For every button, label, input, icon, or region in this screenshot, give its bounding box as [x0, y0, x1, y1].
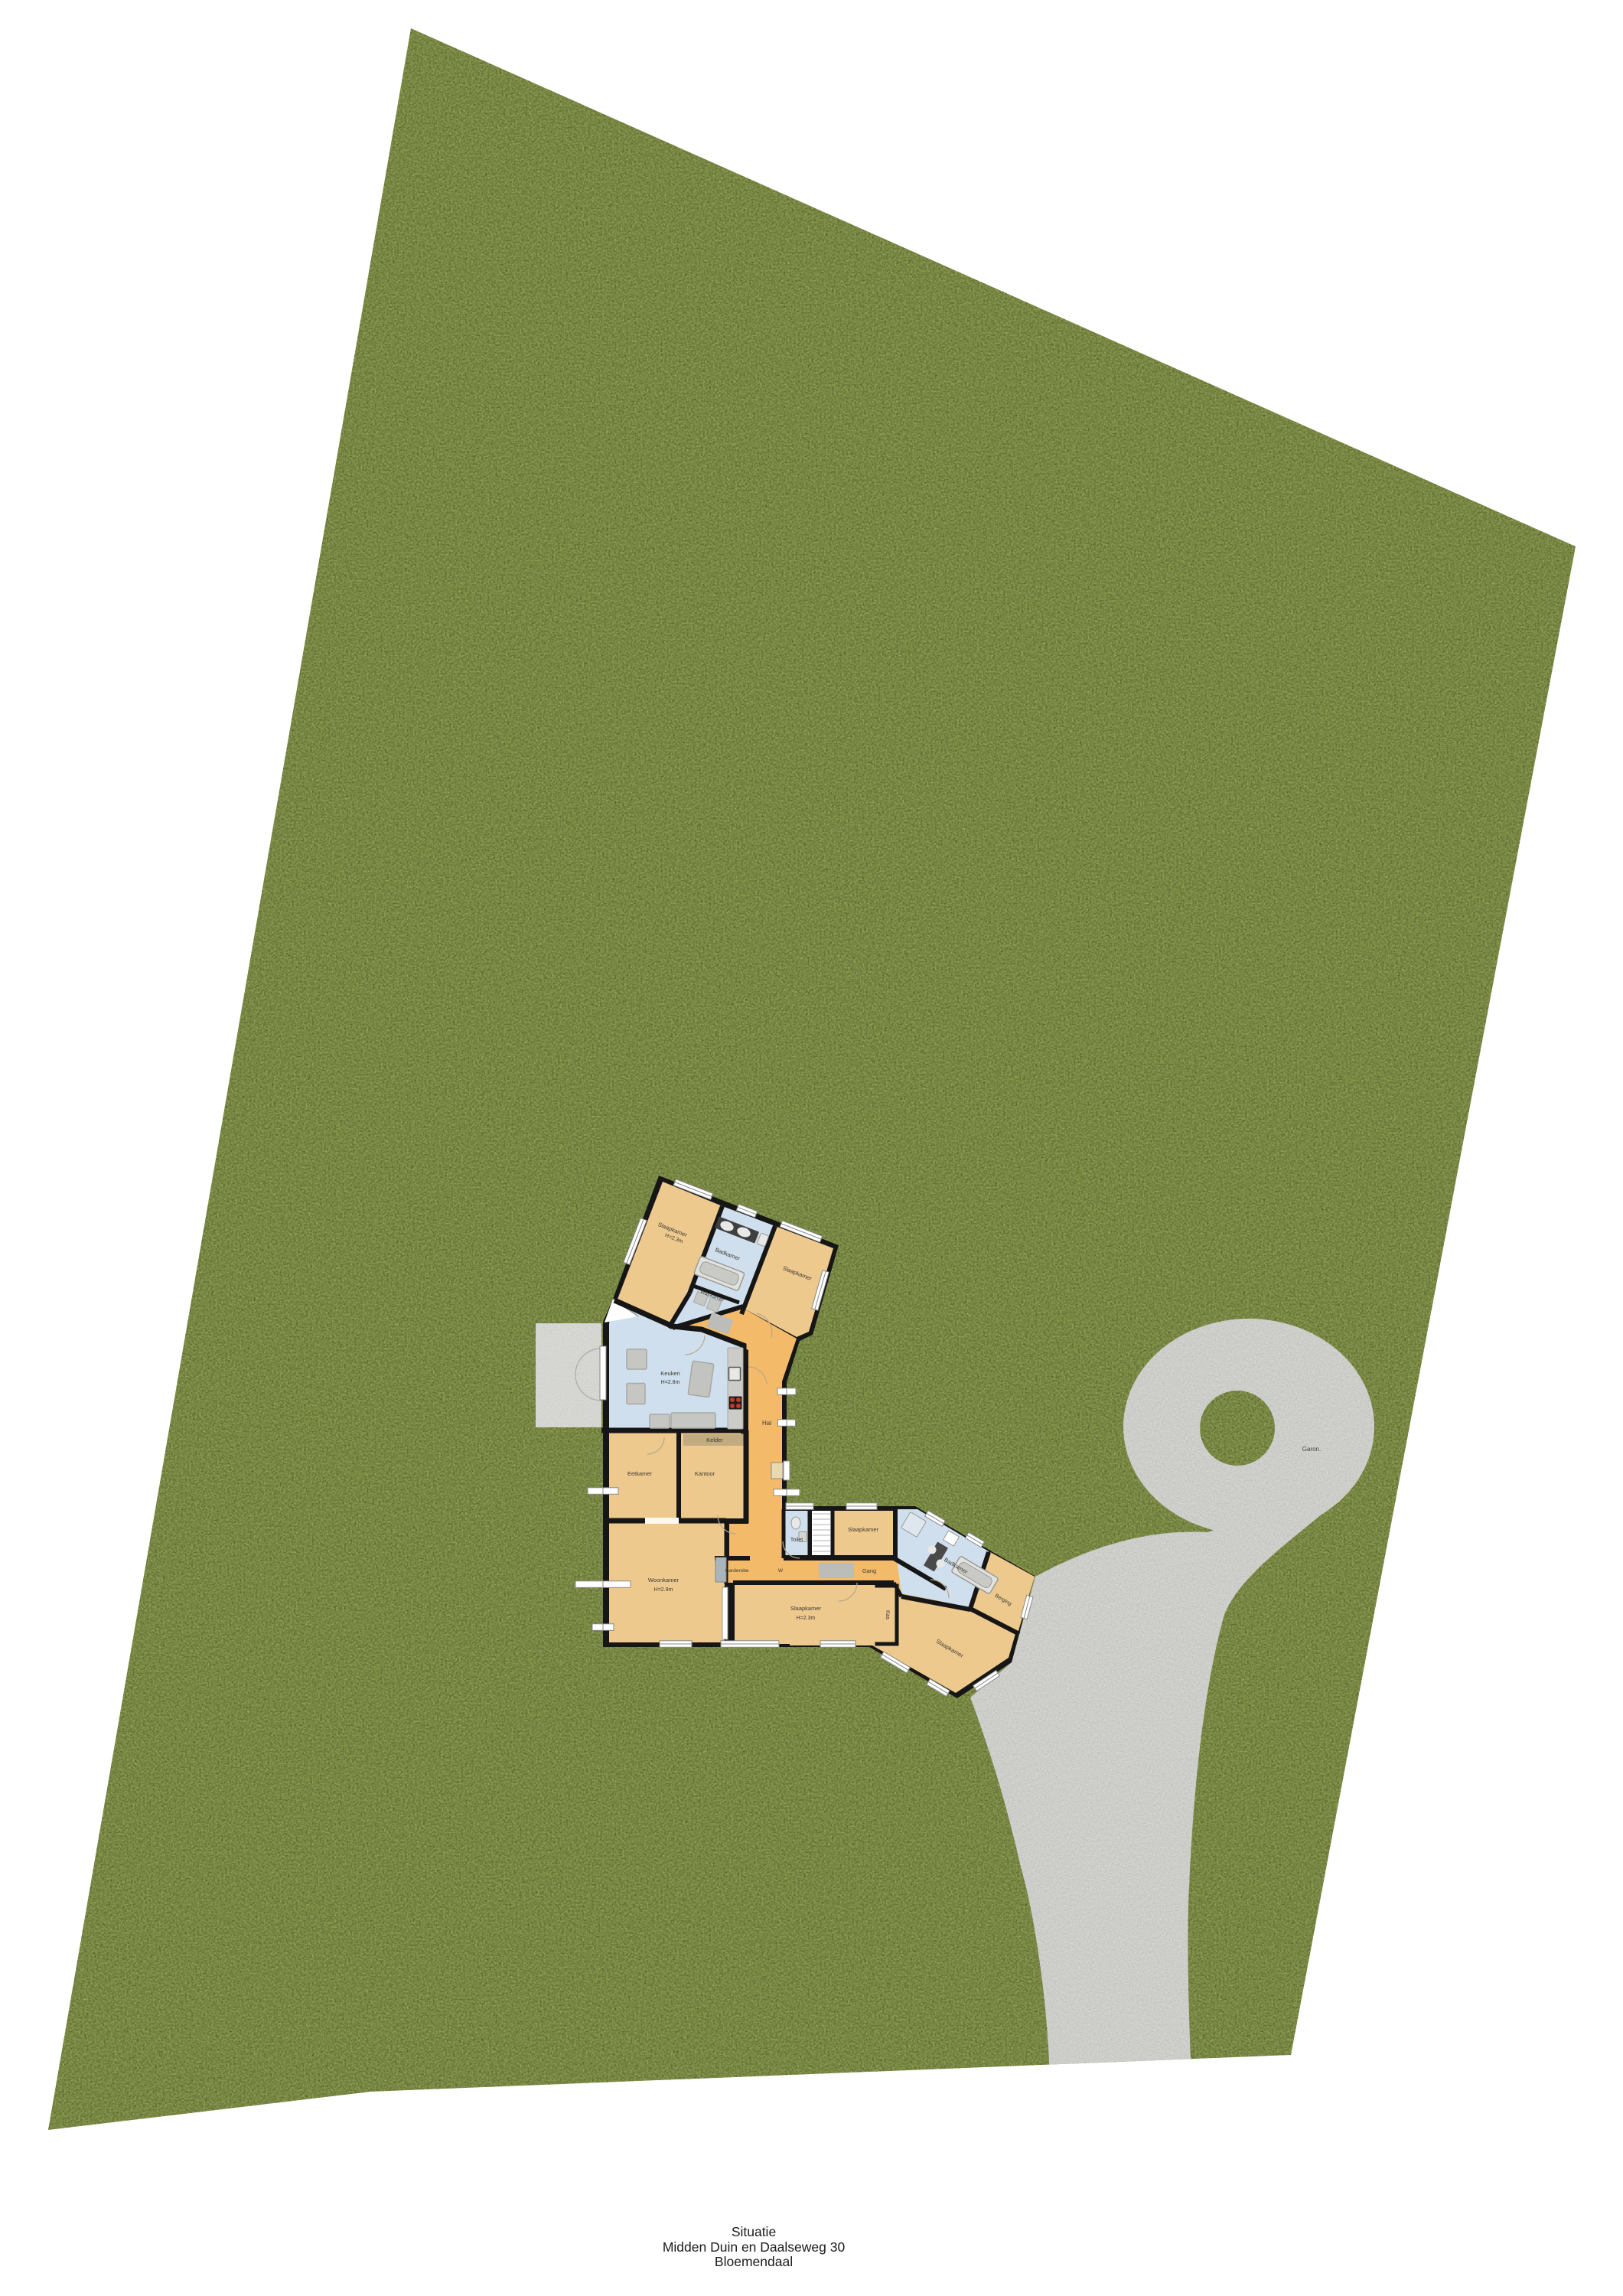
svg-text:Kelder: Kelder [706, 1437, 723, 1443]
svg-text:Woonkamer: Woonkamer [648, 1577, 680, 1583]
svg-text:Kas: Kas [885, 1610, 890, 1620]
svg-text:Garderobe: Garderobe [725, 1568, 748, 1574]
svg-text:Kantoor: Kantoor [695, 1470, 715, 1477]
svg-text:W: W [778, 1568, 784, 1574]
svg-text:Hal: Hal [762, 1420, 771, 1427]
svg-text:Slaapkamer: Slaapkamer [848, 1526, 879, 1533]
svg-text:H=2.9m: H=2.9m [654, 1587, 673, 1593]
svg-text:H=2.3m: H=2.3m [797, 1616, 816, 1621]
svg-text:Keuken: Keuken [660, 1370, 680, 1377]
svg-text:H=2.8m: H=2.8m [661, 1380, 680, 1385]
svg-text:Midden Duin en Daalseweg 30: Midden Duin en Daalseweg 30 [663, 2239, 846, 2255]
svg-text:Situatie: Situatie [732, 2224, 776, 2239]
svg-text:Gang: Gang [862, 1567, 876, 1574]
svg-text:Garon.: Garon. [1302, 1446, 1321, 1453]
svg-text:Toilet: Toilet [790, 1538, 803, 1543]
svg-text:Bloemendaal: Bloemendaal [715, 2254, 793, 2269]
svg-text:Slaapkamer: Slaapkamer [790, 1605, 822, 1612]
svg-text:Eetkamer: Eetkamer [627, 1470, 653, 1477]
